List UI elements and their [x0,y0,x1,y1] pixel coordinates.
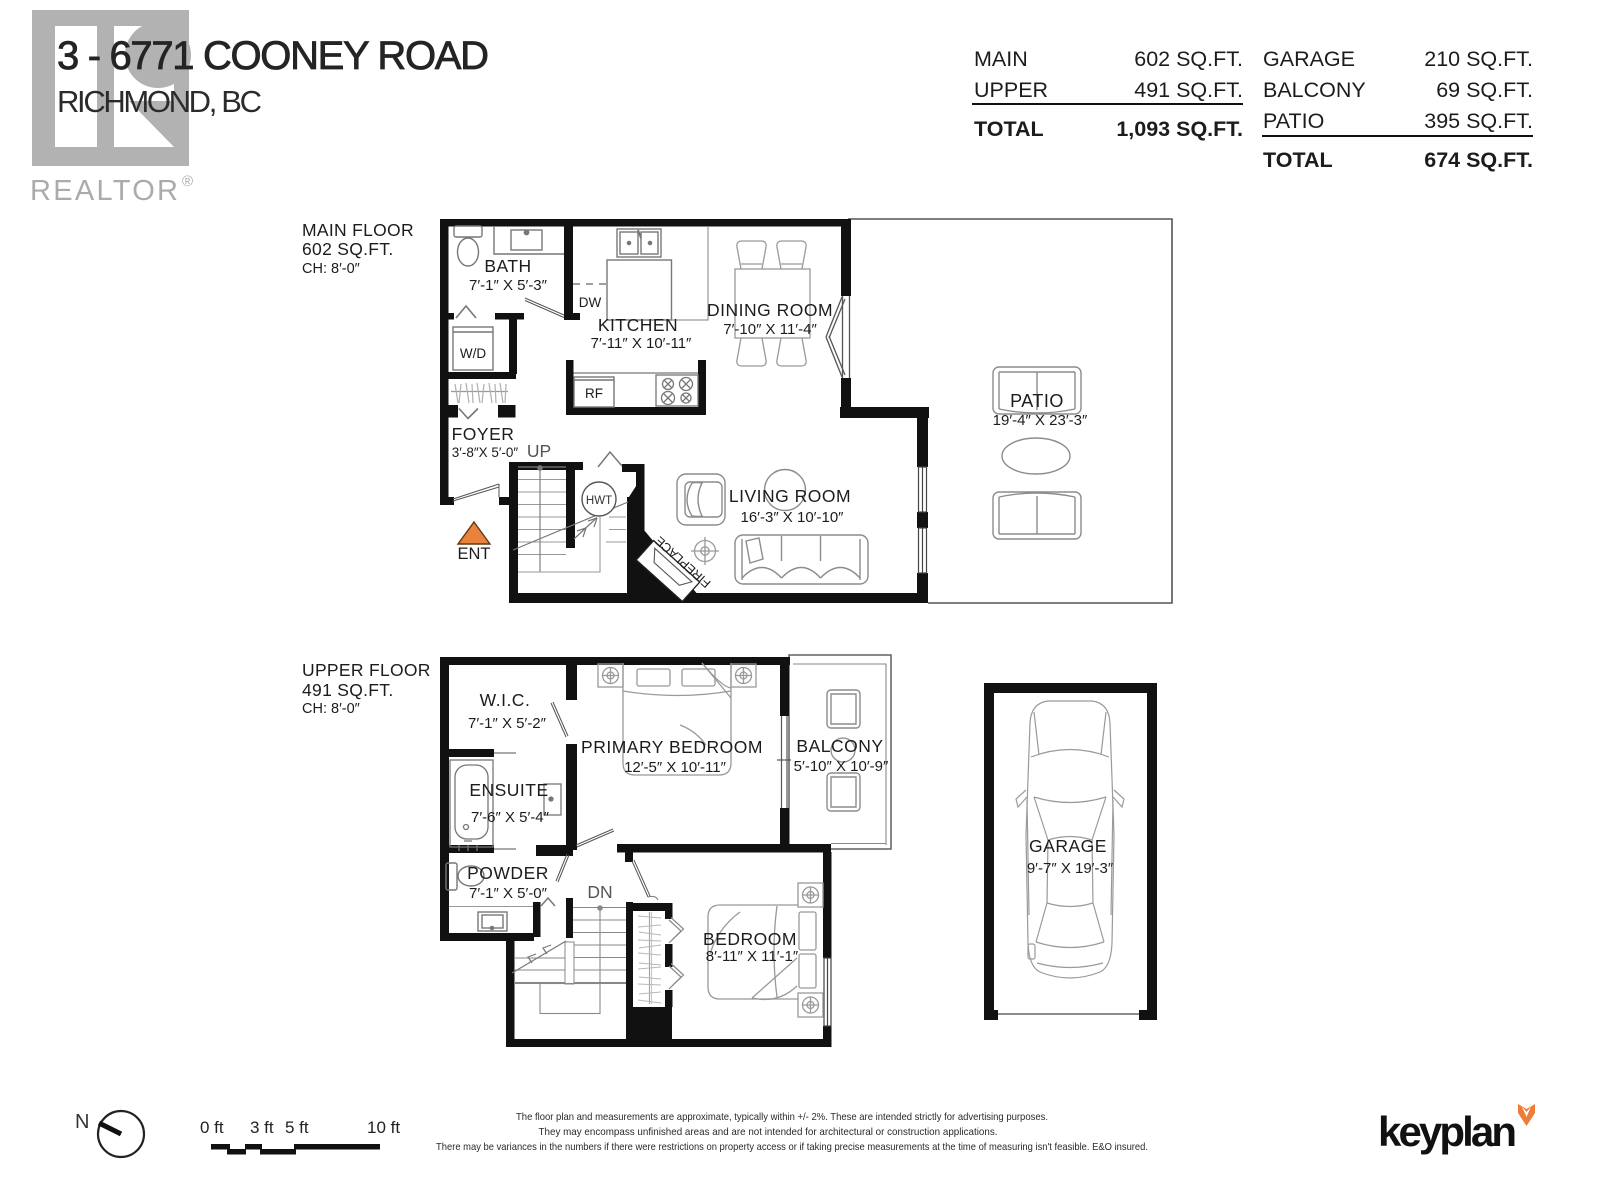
svg-text:KITCHEN: KITCHEN [598,315,678,335]
svg-text:They may encompass unfinished: They may encompass unfinished areas and … [539,1127,998,1138]
svg-text:TOTAL: TOTAL [974,117,1044,141]
svg-text:PATIO: PATIO [1263,109,1324,133]
svg-text:5′-10″ X 10′-9″: 5′-10″ X 10′-9″ [794,758,889,775]
svg-text:602 SQ.FT.: 602 SQ.FT. [1134,47,1243,71]
svg-text:0 ft: 0 ft [200,1118,224,1137]
svg-text:TOTAL: TOTAL [1263,148,1333,172]
svg-text:10 ft: 10 ft [367,1118,400,1137]
svg-text:7′-6″ X 5′-4″: 7′-6″ X 5′-4″ [471,809,550,826]
svg-text:3 - 6771 COONEY ROAD: 3 - 6771 COONEY ROAD [57,34,489,78]
svg-text:395 SQ.FT.: 395 SQ.FT. [1424,109,1533,133]
svg-text:®: ® [182,173,193,190]
svg-text:7′-1″ X 5′-2″: 7′-1″ X 5′-2″ [468,715,547,732]
svg-text:HWT: HWT [586,495,612,507]
svg-text:MAIN FLOOR: MAIN FLOOR [302,220,414,240]
svg-text:RF: RF [585,386,603,401]
svg-text:674 SQ.FT.: 674 SQ.FT. [1424,148,1533,172]
svg-text:CH: 8′-0″: CH: 8′-0″ [302,701,360,717]
svg-text:3′-8″X 5′-0″: 3′-8″X 5′-0″ [452,445,519,460]
svg-text:N: N [75,1111,89,1133]
svg-text:UPPER FLOOR: UPPER FLOOR [302,660,431,680]
svg-text:DINING ROOM: DINING ROOM [707,300,833,320]
svg-text:BEDROOM: BEDROOM [703,929,797,949]
svg-text:491 SQ.FT.: 491 SQ.FT. [302,680,394,700]
svg-text:BATH: BATH [484,256,531,276]
svg-text:491 SQ.FT.: 491 SQ.FT. [1134,78,1243,102]
svg-text:W/D: W/D [460,346,486,361]
svg-text:BALCONY: BALCONY [796,736,883,756]
svg-text:There may be variances in the: There may be variances in the numbers if… [436,1142,1148,1153]
svg-text:DN: DN [587,882,612,902]
svg-text:7′-10″ X 11′-4″: 7′-10″ X 11′-4″ [723,321,817,338]
svg-text:W.I.C.: W.I.C. [480,690,531,710]
svg-text:LIVING ROOM: LIVING ROOM [729,486,851,506]
svg-text:5 ft: 5 ft [285,1118,309,1137]
svg-text:BALCONY: BALCONY [1263,78,1366,102]
svg-text:CH: 8′-0″: CH: 8′-0″ [302,261,360,277]
svg-text:69 SQ.FT.: 69 SQ.FT. [1436,78,1533,102]
svg-text:19′-4″ X 23′-3″: 19′-4″ X 23′-3″ [993,412,1088,429]
svg-text:MAIN: MAIN [974,47,1028,71]
svg-text:ENSUITE: ENSUITE [469,780,548,800]
svg-text:The floor plan and measurement: The floor plan and measurements are appr… [516,1112,1048,1123]
svg-text:7′-11″ X 10′-11″: 7′-11″ X 10′-11″ [591,335,692,352]
svg-text:PATIO: PATIO [1010,391,1064,411]
svg-text:DW: DW [579,295,602,310]
svg-text:1,093 SQ.FT.: 1,093 SQ.FT. [1116,117,1243,141]
svg-text:9′-7″ X 19′-3″: 9′-7″ X 19′-3″ [1027,860,1114,877]
svg-text:602 SQ.FT.: 602 SQ.FT. [302,239,394,259]
svg-text:PRIMARY BEDROOM: PRIMARY BEDROOM [581,737,763,757]
svg-text:7′-1″ X 5′-0″: 7′-1″ X 5′-0″ [469,885,548,902]
svg-text:8′-11″ X 11′-1″: 8′-11″ X 11′-1″ [706,948,799,965]
svg-text:ENT: ENT [458,545,491,563]
svg-text:GARAGE: GARAGE [1263,47,1355,71]
svg-text:FOYER: FOYER [452,424,515,444]
svg-text:RICHMOND, BC: RICHMOND, BC [57,84,262,119]
svg-text:12′-5″ X 10′-11″: 12′-5″ X 10′-11″ [624,759,727,776]
svg-text:GARAGE: GARAGE [1029,836,1107,856]
svg-text:UP: UP [527,441,551,461]
svg-text:UPPER: UPPER [974,78,1048,102]
svg-text:210 SQ.FT.: 210 SQ.FT. [1424,47,1533,71]
svg-text:7′-1″ X 5′-3″: 7′-1″ X 5′-3″ [469,277,548,294]
svg-text:16′-3″ X 10′-10″: 16′-3″ X 10′-10″ [741,509,845,526]
svg-text:keyplan: keyplan [1378,1108,1517,1155]
svg-text:POWDER: POWDER [467,863,549,883]
svg-text:3 ft: 3 ft [250,1118,274,1137]
